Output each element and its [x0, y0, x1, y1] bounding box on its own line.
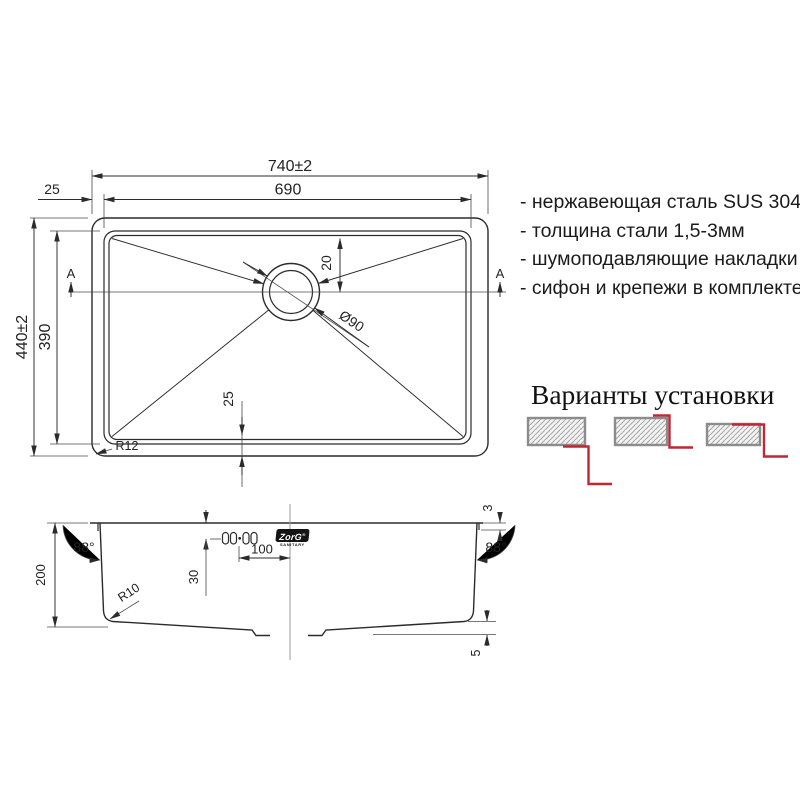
dim-slope: 5 [469, 649, 483, 656]
brand-sub-label: SANITARY [280, 542, 305, 547]
dim-clip-offset: 30 [186, 570, 201, 584]
drain-dia-leader [243, 262, 369, 347]
section-label-left: A [67, 266, 76, 281]
angle-left-label: 88° [73, 539, 94, 555]
dim-inner-width: 690 [275, 182, 302, 199]
dim-depth: 200 [33, 564, 48, 586]
right-wall-bottom [308, 523, 477, 636]
countertop-section-3 [707, 424, 760, 445]
countertop-section-1 [528, 418, 585, 445]
drain-dia-arrow1 [243, 262, 267, 276]
dim-drain-offset: 20 [318, 255, 334, 271]
dim-drain-diameter: Ø90 [336, 307, 367, 335]
brand-logo: ZorG® [275, 529, 309, 542]
dim-outer-height: 440±2 [14, 315, 31, 359]
dim-rim-left: 25 [44, 181, 60, 197]
crease-bottom-right [313, 310, 463, 436]
top-view: A A 740±2 690 25 440±2 390 20 Ø90 [14, 158, 506, 487]
brand-name: ZorG [279, 532, 303, 542]
spec-item-sound-pads: - шумоподавляющие накладки [520, 245, 800, 274]
crease-bottom-left [112, 310, 269, 437]
spec-item-thickness: - толщина стали 1,5-3мм [520, 217, 800, 246]
sink-outer-rim [92, 218, 488, 456]
spec-item-material: - нержавеющая сталь SUS 304 [520, 188, 800, 217]
angle-right-label: 88° [485, 539, 506, 555]
hole-center-dot [238, 537, 241, 540]
section-view: 200 88° 88° 3 30 100 R10 [33, 504, 515, 660]
r12-leader [96, 449, 112, 454]
bowl-opening-edge [104, 231, 471, 444]
left-wall-bottom [100, 523, 270, 636]
dim-outer-width: 740±2 [268, 158, 312, 175]
crease-top-left [112, 239, 264, 284]
corner-radius-label: R12 [116, 439, 139, 453]
install-options [528, 416, 788, 485]
install-options-title: Варианты установки [531, 379, 774, 411]
countertop-section-2 [615, 418, 667, 445]
dim-lip: 3 [481, 504, 495, 511]
dim-inner-height: 390 [37, 324, 54, 351]
spec-list: - нержавеющая сталь SUS 304 - толщина ст… [520, 188, 800, 303]
install-profile-undermount [563, 447, 612, 485]
spec-item-included: - сифон и крепежи в комплекте [520, 274, 800, 303]
dim-drain-center: 100 [251, 542, 273, 557]
section-label-right: A [496, 266, 505, 281]
drawing-canvas: A A 740±2 690 25 440±2 390 20 Ø90 [0, 0, 800, 800]
bowl-floor-edge [109, 236, 466, 440]
registered-mark: ® [302, 532, 306, 537]
dim-rim-bottom: 25 [220, 391, 236, 407]
